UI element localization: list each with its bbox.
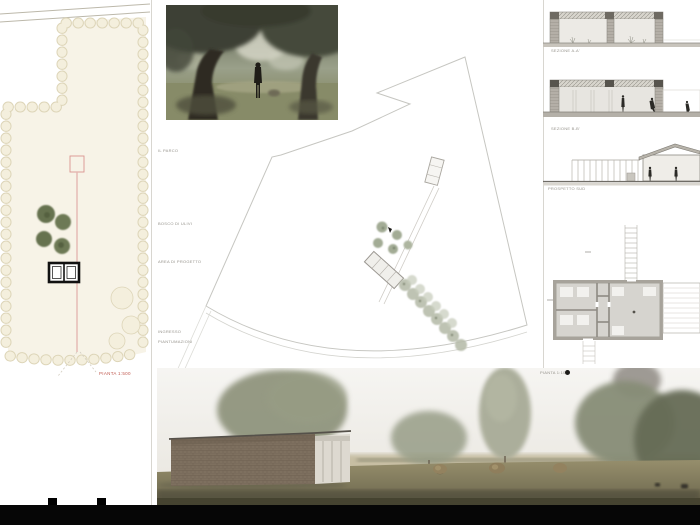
- plan-scale-label: PIANTA 1:500: [99, 372, 131, 377]
- pergola-walkway: [625, 225, 637, 283]
- drawings-column: [543, 0, 700, 368]
- court-plan: [663, 283, 700, 333]
- left-site-plan: [0, 0, 155, 505]
- footer-bar: [0, 505, 700, 525]
- north-indicator-icon: [565, 370, 570, 375]
- drawing-label: PIANTA 1:100: [540, 371, 568, 376]
- masterplan: [157, 55, 545, 370]
- panel-divider-left: [151, 0, 152, 505]
- foreground-dark: [157, 498, 700, 505]
- section-bb-drawing: [543, 80, 700, 117]
- walkway-below: [583, 341, 595, 364]
- road-extension: [167, 306, 211, 370]
- building-footprint: [49, 263, 79, 282]
- photomontage-render: [157, 368, 700, 505]
- site-boundary: [206, 57, 527, 351]
- section-aa-drawing: [543, 12, 700, 47]
- drawing-label: PROSPETTO SUD: [548, 187, 585, 192]
- drawing-label: SEZIONE A-A': [551, 49, 580, 54]
- render-building: [169, 431, 351, 486]
- presentation-board: PIANTA 1:500: [0, 0, 700, 525]
- floor-plan-drawing: [547, 225, 700, 364]
- scale-ticks: [48, 498, 106, 505]
- drawing-label: SEZIONE B-B': [551, 127, 580, 132]
- elevation-drawing: [543, 144, 700, 186]
